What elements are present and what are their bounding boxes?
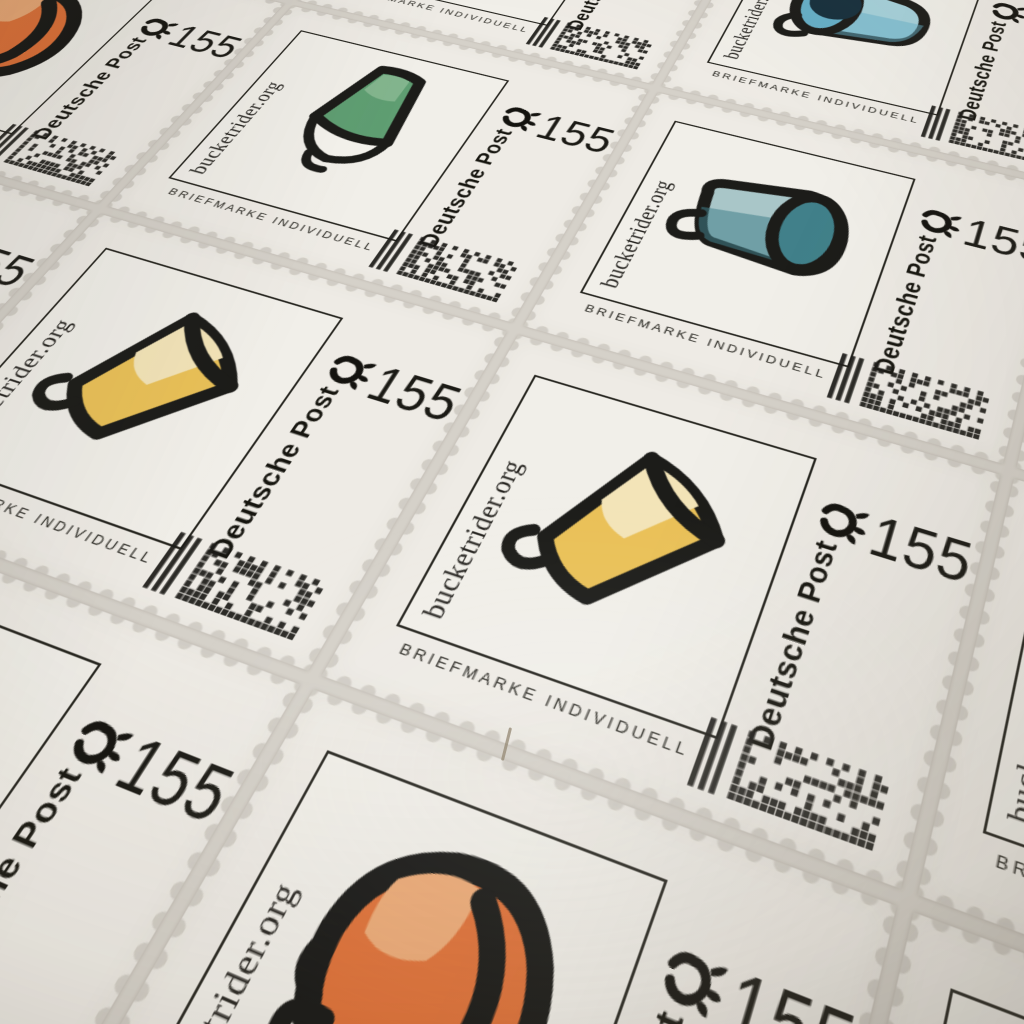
stamp-image-frame: bucketrider.org <box>580 121 916 368</box>
denomination-label: 155 <box>958 209 1024 274</box>
stamp-sheet: bucketrider.org BRIEFMARKE INDIVIDUELL D… <box>0 0 1024 1024</box>
stamp-image-frame: bucketrider.org <box>983 526 1024 974</box>
posthorn-icon <box>649 938 734 1024</box>
website-label: bucketrider.org <box>1001 625 1024 830</box>
carrier-label: Deutsche Post <box>0 763 91 1024</box>
datamatrix-cells <box>0 123 131 191</box>
datamatrix-barcode <box>0 123 131 191</box>
datamatrix-cells <box>367 228 532 308</box>
datamatrix-cells <box>525 16 665 74</box>
denomination-label: 155 <box>713 949 867 1024</box>
datamatrix-barcode <box>525 16 665 74</box>
denomination-label: 155 <box>862 502 980 598</box>
stamp-image-frame: bucketrider.org <box>396 375 817 740</box>
bucket-illustration <box>618 135 896 339</box>
stamp-image-frame: bucketrider.org <box>0 0 157 135</box>
bucket-illustration <box>738 0 969 95</box>
stamp-image-frame: bucketrider.org <box>707 0 986 116</box>
datamatrix-barcode <box>367 228 532 308</box>
stamp-image-frame: bucketrider.org <box>0 248 343 550</box>
stamp-sheet-photo: bucketrider.org BRIEFMARKE INDIVIDUELL D… <box>0 0 1024 1024</box>
datamatrix-cells <box>0 994 46 1024</box>
bucket-illustration <box>445 394 793 695</box>
datamatrix-barcode <box>0 994 46 1024</box>
